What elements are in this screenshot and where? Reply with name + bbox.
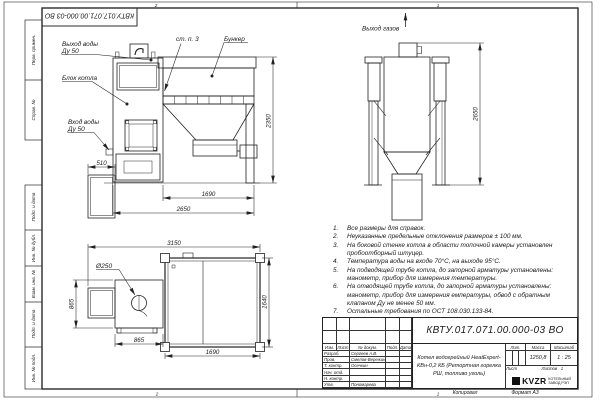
bunker-hopper: [163, 104, 254, 140]
sheets-cell: Листов 1: [542, 366, 578, 373]
label-water-in-2: Ду 50: [67, 126, 85, 133]
water-outlet-stub-right: [152, 52, 156, 58]
label-gas-out: Выход газов: [362, 25, 400, 33]
margin-inv-dubl: Инв. № дубл.: [31, 234, 36, 262]
side-view: [364, 43, 450, 220]
dim-plan-boiler-depth-865: 865: [68, 298, 75, 309]
side-leg-right: [436, 101, 445, 185]
margin-perv-primen: Перв. примен.: [31, 35, 36, 66]
label-boiler-block: Блок котла: [62, 75, 97, 82]
col-dokum: № докум.: [350, 344, 386, 351]
note-item: 2.Неуказанные предельные отклонения разм…: [333, 233, 561, 241]
col-izm: Изм.: [323, 344, 337, 351]
plan-bunker: [165, 258, 260, 347]
col-data: Дата: [400, 344, 412, 351]
bunker-lid: [158, 57, 256, 68]
col-list: Лист: [337, 344, 350, 351]
note-item: 5.На подводящей трубе котла, до запорной…: [333, 267, 561, 284]
sig-role: Утв.: [323, 382, 350, 388]
plan-front-door-strip: [117, 328, 157, 333]
logo-mark-icon: [512, 377, 520, 385]
notes-block: 1.Все размеры для справок. 2.Неуказанные…: [333, 225, 561, 317]
chimney-connector: [130, 44, 148, 58]
side-pillar-right: [434, 63, 446, 101]
note-number: 4.: [333, 258, 347, 266]
sheets-label: Листов: [542, 366, 558, 371]
note-number: 5.: [333, 267, 347, 284]
dim-side-height-2650: 2650: [472, 107, 479, 122]
feeder-box: [193, 140, 237, 156]
boiler-top-panel: [117, 63, 159, 90]
margin-inv-podl: Инв. № подл.: [31, 354, 36, 383]
label-chimney-dia: Ø250: [95, 263, 112, 270]
note-text: На подводящей трубе котла, до запорной а…: [347, 267, 555, 284]
dim-cabinet-510: 510: [96, 160, 107, 167]
label-bunker: Бункер: [224, 36, 245, 43]
note-item: 7.Остальные требования по ОСТ 108.030.13…: [333, 308, 561, 316]
sig-name: Пономарева: [350, 382, 386, 388]
note-number: 3.: [333, 242, 347, 259]
margin-vzam-inv: Взам. инв. №: [31, 270, 36, 298]
note-number: 1.: [333, 225, 347, 233]
logo-text: KVZR: [522, 376, 546, 386]
margin-podp-data-1: Подп. и дата: [31, 192, 36, 221]
col-podp: Подп.: [386, 344, 400, 351]
mass-label: Масса: [526, 344, 551, 351]
front-view-dimensions: [88, 57, 277, 216]
dim-plan-boiler-width-865: 865: [134, 337, 145, 344]
bunker-grate: [163, 96, 254, 104]
note-text: Температура воды на входе 70°С, на выход…: [347, 258, 555, 266]
front-view-labels: Выход воды Ду 50 Блок котла Вход воды Ду…: [61, 36, 245, 133]
title-block-signatures: Изм. Лист № докум. Подп. Дата Разраб. Се…: [323, 318, 413, 388]
note-number: 6.: [333, 283, 347, 308]
front-view: [88, 44, 260, 218]
dim-height-2350: 2350: [265, 114, 272, 129]
plan-view: [88, 253, 265, 352]
dim-total-2650: 2650: [176, 206, 191, 213]
note-text: На отводящей трубе котла, до запорной ар…: [347, 283, 555, 308]
side-hopper: [384, 152, 430, 174]
zone-bottom-left: 2: [155, 392, 159, 397]
margin-sprav-no: Справ. №: [31, 100, 36, 121]
label-water-out-1: Выход воды: [62, 40, 98, 48]
label-water-in-1: Вход воды: [68, 118, 99, 126]
scale-label: Масштаб: [551, 344, 577, 351]
water-outlet-stub-left: [116, 52, 120, 58]
label-water-out-2: Ду 50: [61, 48, 79, 55]
product-name: Котел водогрейный HeatExpert-КВн-0,2 КБ …: [413, 344, 506, 389]
furnace-door: [125, 120, 157, 151]
lit-label: Лит.: [506, 344, 526, 351]
note-number: 7.: [333, 308, 347, 316]
note-text: Неуказанные предельные отклонения размер…: [347, 233, 555, 241]
plan-cabinet: [88, 288, 115, 318]
title-doc-number: КВТУ.017.071.00.000-03 ВО: [413, 318, 577, 344]
water-inlet-stub: [106, 149, 113, 155]
flue-curl: [135, 49, 143, 55]
lit-cells: [506, 351, 526, 366]
title-block: Изм. Лист № докум. Подп. Дата Разраб. Се…: [322, 317, 578, 389]
side-pillar-left: [368, 63, 380, 101]
mass-value: 1250,8: [526, 351, 551, 366]
zone-top-right: 1: [437, 3, 440, 8]
plan-bunker-pad-tl: [161, 254, 170, 263]
dim-plan-total-3150: 3150: [167, 240, 181, 247]
footer-format: Формат А3: [495, 390, 555, 396]
drawing-sheet: КВТУ.017.071.00.000-03 ВО 2 1 2 1 Перв. …: [0, 0, 600, 400]
note-text: Остальные требования по ОСТ 108.030.133-…: [347, 308, 555, 316]
scale-value: 1 : 25: [551, 351, 577, 366]
note-item: 4.Температура воды на входе 70°С, на вых…: [333, 258, 561, 266]
sheet-label: Лист: [506, 366, 542, 373]
dim-bunker-1690: 1690: [202, 191, 216, 198]
title-block-main: КВТУ.017.071.00.000-03 ВО Котел водогрей…: [413, 318, 577, 388]
logo-caption: КОТЕЛЬНЫЙ ЗАВОД РЭП: [548, 377, 571, 385]
side-leg-left: [369, 101, 378, 185]
control-cabinet: [88, 175, 115, 218]
note-item: 6.На отводящей трубе котла, до запорной …: [333, 283, 561, 308]
doc-number-top: КВТУ.017.071.00.000-03 ВО: [44, 12, 134, 19]
side-stoker-box: [392, 174, 422, 220]
side-chimney: [399, 43, 417, 57]
note-item: 3.На боковой стенке котла в области топо…: [333, 242, 561, 259]
margin-podp-data-2: Подп. и дата: [31, 309, 36, 338]
label-wall-note: ст. п. 3: [176, 36, 199, 43]
sheets-value: 1: [561, 366, 563, 371]
note-number: 2.: [333, 233, 347, 241]
footer-copied: Копировал: [425, 390, 505, 396]
side-body: [384, 57, 430, 152]
dim-plan-bunker-depth-1640: 1640: [261, 295, 268, 309]
dim-plan-bunker-width-1690: 1690: [206, 349, 220, 356]
note-text: На боковой стенке котла в области топочн…: [347, 242, 555, 259]
zone-top-left: 2: [154, 3, 158, 8]
bunker-body: [163, 68, 254, 96]
feeder-motor: [240, 145, 257, 158]
company-logo: KVZR КОТЕЛЬНЫЙ ЗАВОД РЭП: [506, 373, 577, 389]
ash-door: [116, 154, 160, 180]
margin-field-labels: Перв. примен. Справ. № Подп. и дата Инв.…: [31, 35, 36, 383]
